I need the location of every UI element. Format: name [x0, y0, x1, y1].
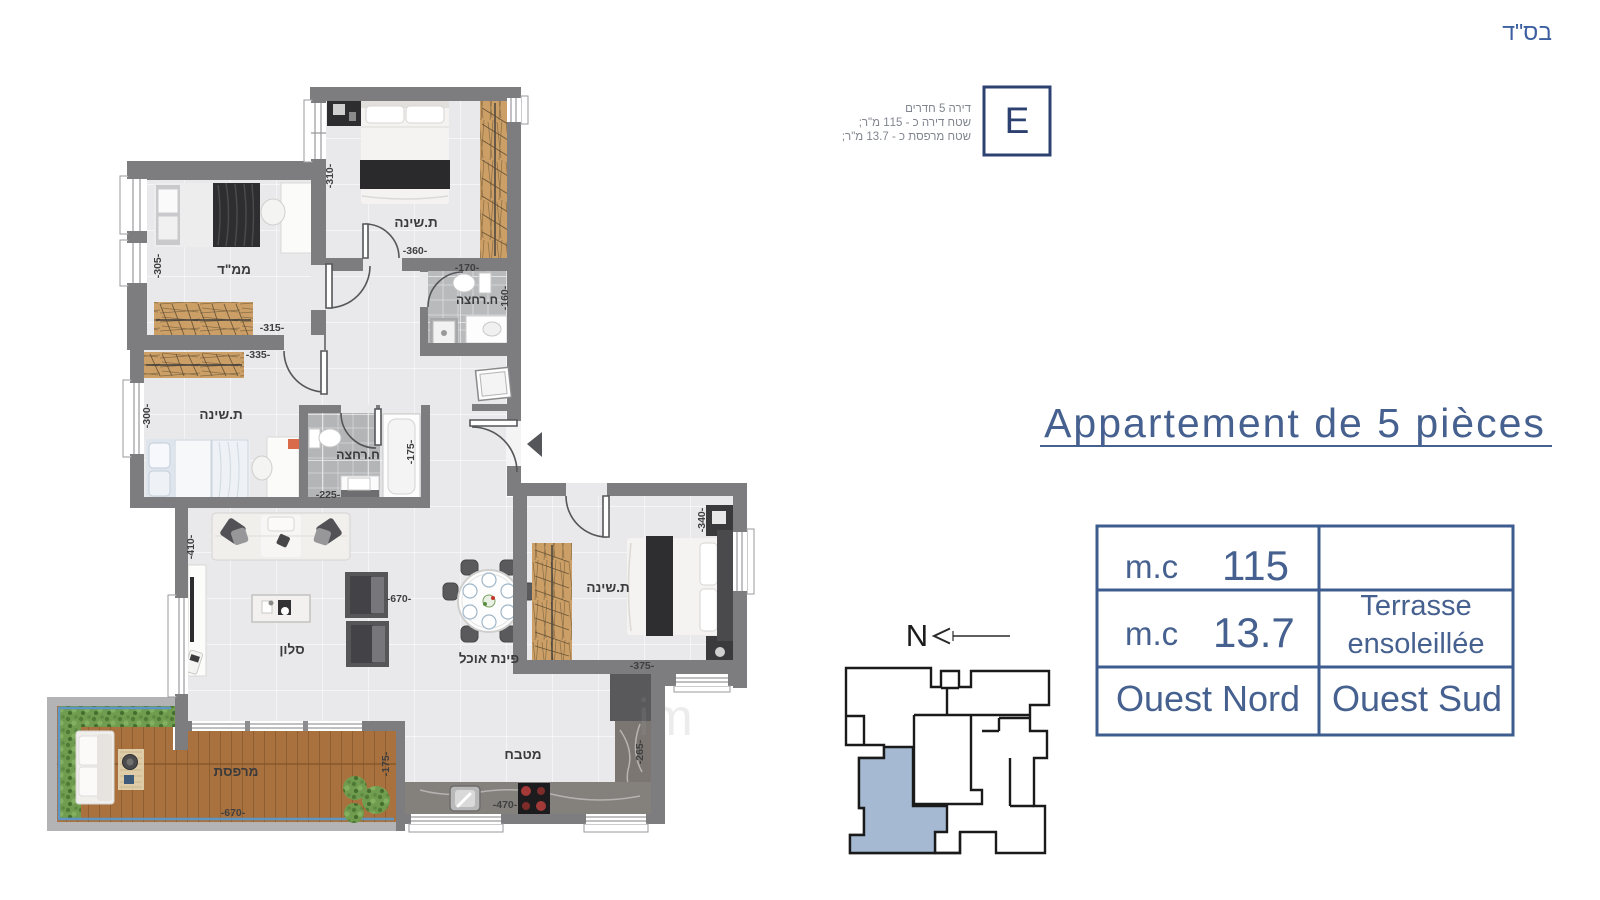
svg-text:-375-: -375-	[630, 660, 655, 672]
svg-text:פינת אוכל: פינת אוכל	[459, 651, 520, 666]
svg-text:-470-: -470-	[493, 799, 518, 811]
svg-text:Ouest Sud: Ouest Sud	[1332, 678, 1502, 719]
svg-text:N: N	[906, 618, 928, 653]
svg-text:-170-: -170-	[455, 262, 480, 274]
svg-text:-300-: -300-	[141, 403, 153, 428]
svg-text:-305-: -305-	[152, 253, 164, 278]
svg-text:Ouest Nord: Ouest Nord	[1116, 678, 1300, 719]
svg-text:115: 115	[1222, 542, 1289, 589]
svg-text:ח.רחצה: ח.רחצה	[336, 448, 380, 462]
svg-text:ת.שינה: ת.שינה	[394, 215, 437, 230]
svg-text:-160-: -160-	[499, 285, 511, 310]
svg-text:ח.רחצה: ח.רחצה	[456, 293, 498, 307]
svg-text:m.c: m.c	[1125, 548, 1178, 585]
svg-text:13.7: 13.7	[1213, 609, 1295, 656]
svg-text:-410-: -410-	[185, 534, 197, 559]
svg-text:-225-: -225-	[316, 489, 341, 501]
svg-text:-335-: -335-	[246, 349, 271, 361]
svg-text:סלון: סלון	[279, 642, 304, 657]
svg-text:שטח דירה כ - 115 מ"ר;: שטח דירה כ - 115 מ"ר;	[859, 117, 971, 129]
svg-text:דירה 5 חדרים: דירה 5 חדרים	[905, 103, 972, 115]
svg-text:מטבח: מטבח	[504, 747, 541, 762]
svg-text:-175-: -175-	[380, 751, 392, 776]
svg-text:im: im	[638, 689, 693, 747]
svg-text:-670-: -670-	[387, 593, 412, 605]
svg-text:ת.שינה: ת.שינה	[586, 580, 629, 595]
svg-text:-360-: -360-	[403, 245, 428, 257]
svg-text:ממ"ד: ממ"ד	[217, 262, 251, 277]
svg-text:-315-: -315-	[260, 322, 285, 334]
svg-text:Appartement de 5 pièces: Appartement de 5 pièces	[1044, 400, 1546, 446]
svg-text:Terrasse: Terrasse	[1360, 590, 1471, 622]
svg-text:-265-: -265-	[634, 739, 646, 764]
svg-text:m.c: m.c	[1125, 615, 1178, 652]
svg-text:ת.שינה: ת.שינה	[199, 407, 242, 422]
svg-text:מרפסת: מרפסת	[214, 764, 259, 779]
svg-text:E: E	[1005, 100, 1030, 141]
svg-text:-670-: -670-	[221, 807, 246, 819]
svg-text:-340-: -340-	[696, 507, 708, 532]
svg-text:-175-: -175-	[405, 439, 417, 464]
svg-text:ensoleillée: ensoleillée	[1347, 628, 1484, 660]
svg-text:שטח מרפסת כ - 13.7 מ"ר;: שטח מרפסת כ - 13.7 מ"ר;	[842, 131, 971, 143]
svg-text:בס"ד: בס"ד	[1502, 19, 1552, 45]
svg-text:-310-: -310-	[324, 163, 336, 188]
